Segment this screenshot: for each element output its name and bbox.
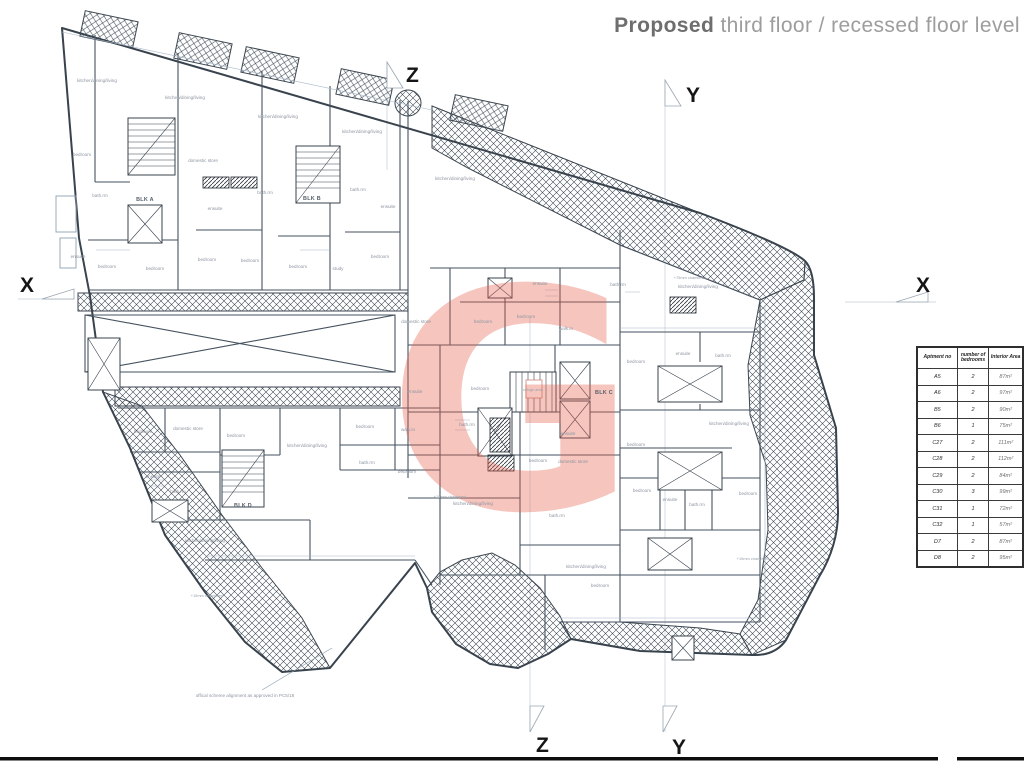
room-label: bedroom [146,266,164,271]
room-label: bedroom [73,152,91,157]
room-label: kitchen/dining/living [77,78,117,83]
room-label: bedroom [371,254,389,259]
room-label: bedroom [471,386,489,391]
block-label: BLK C [595,390,613,396]
room-label: walk.in [559,326,573,331]
room-label: kitchen/dining/living [678,284,718,289]
room-label: bedroom [739,491,757,496]
room-label: bedroom [98,264,116,269]
table-cell: 2 [957,550,989,567]
room-label: domestic store [173,426,203,431]
table-row: B5290m² [917,402,1023,419]
room-label: bedroom [633,488,651,493]
room-label: bedroom [134,429,152,434]
drawing-title-emphasis: Proposed [614,14,714,37]
apartment-table-body: A5287m²A6297m²B5290m²B6175m²C272111m²C28… [917,369,1023,568]
drawing-sheet: offical scheme alignment as approved in … [0,0,1024,768]
balcony-box [241,47,299,84]
table-cell: 87m² [989,369,1023,386]
room-label: walk.in [401,427,415,432]
room-label: bedroom [356,424,374,429]
lift-box [658,366,722,402]
terrace-bottom-left [103,392,330,672]
room-label: ensuite [381,204,396,209]
table-cell: 2 [957,468,989,485]
table-cell: D7 [917,534,957,551]
floor-plan-canvas: offical scheme alignment as approved in … [0,0,1024,768]
section-marker-z-bottom: Z [530,706,549,757]
table-row: D7287m² [917,534,1023,551]
lift-box [152,500,188,522]
table-cell: D8 [917,550,957,567]
room-label: bath.rm [350,187,366,192]
section-marker-x-left: X [20,274,74,299]
room-label: bath.rm [459,422,475,427]
table-cell: 2 [957,402,989,419]
table-cell: C32 [917,517,957,534]
room-label: +15mm chamfered [737,556,770,561]
table-row: C272111m² [917,435,1023,452]
table-cell: 87m² [989,534,1023,551]
table-cell: 57m² [989,517,1023,534]
room-label: ensuite [676,351,691,356]
room-label: refuge area [523,387,544,392]
room-label: bath.rm [715,353,731,358]
terrace-right [740,261,838,655]
apartment-table-head: Aptment no number of bedrooms Interior A… [917,347,1023,369]
balcony-strip-lower [115,387,400,406]
room-label: bedroom [627,359,645,364]
table-row: C282112m² [917,451,1023,468]
section-marker-z-top: Z [387,62,419,88]
table-cell: 99m² [989,484,1023,501]
room-label: +75mm chamfered [674,275,707,280]
table-cell: 95m² [989,550,1023,567]
table-cell: 2 [957,435,989,452]
drawing-title-rest: third floor / recessed floor level [714,14,1020,37]
room-label: kitchen/dining/living [709,421,749,426]
room-label: bedroom [591,583,609,588]
table-cell: A6 [917,385,957,402]
stair-blk-a [128,118,175,175]
table-cell: 84m² [989,468,1023,485]
room-label: bath.rm [689,502,705,507]
svg-text:Z: Z [406,64,419,87]
room-label: ensuite [663,497,678,502]
room-label: bath.rm [610,282,626,287]
lift-box [658,452,722,490]
stair-blk-b [296,146,340,203]
table-cell: 2 [957,385,989,402]
block-label: BLK D [234,503,252,509]
room-label: ensuite [561,431,576,436]
block-label: BLK B [303,196,321,202]
room-label: kitchen/dining/living [185,538,225,543]
room-label: domestic store [188,158,218,163]
table-cell: C29 [917,468,957,485]
room-label: bedroom [241,258,259,263]
room-label: kitchen/dining/living [566,564,606,569]
room-label: bedroom [627,442,645,447]
room-label: ensuite [71,254,86,259]
room-label: kitchen/dining/living [165,95,205,100]
room-label: +15mm chamfered [434,494,467,499]
drawing-title: Proposed third floor / recessed floor le… [614,14,1020,38]
room-label: ensuite [208,206,223,211]
room-label: +15mm chamfered [191,593,224,598]
table-row: C30399m² [917,484,1023,501]
table-cell: 97m² [989,385,1023,402]
svg-text:Y: Y [686,84,700,107]
room-label: bedroom [474,319,492,324]
room-label: ensuite [146,474,161,479]
table-cell: C31 [917,501,957,518]
room-label: bedroom [517,314,535,319]
table-cell: 2 [957,451,989,468]
table-row: D8295m² [917,550,1023,567]
col-header-area: Interior Area [989,347,1023,369]
logo-watermark: G [387,225,637,580]
table-cell: 2 [957,369,989,386]
svg-text:X: X [916,274,930,297]
room-label: bath.rm [359,460,375,465]
col-header-apartment: Aptment no [917,347,957,369]
room-label: ensuite [533,281,548,286]
section-marker-y-bottom: Y [663,706,686,759]
room-label: kitchen/dining/living [435,176,475,181]
table-cell: 1 [957,501,989,518]
table-row: C29284m² [917,468,1023,485]
table-cell: 90m² [989,402,1023,419]
apartment-table: Aptment no number of bedrooms Interior A… [916,346,1024,568]
room-label: bedroom [529,458,547,463]
table-cell: C30 [917,484,957,501]
section-marker-x-right: X [896,274,930,302]
svg-text:X: X [20,274,34,297]
table-cell: C27 [917,435,957,452]
table-cell: 1 [957,517,989,534]
room-label: kitchen/dining/living [342,129,382,134]
room-label: bath.rm [92,193,108,198]
table-cell: B5 [917,402,957,419]
col-header-bedrooms: number of bedrooms [957,347,989,369]
block-label: BLK A [136,197,154,203]
balcony-strip-upper [78,293,408,311]
room-label: bath.rm [170,489,186,494]
svg-text:Z: Z [536,734,549,757]
table-cell: 112m² [989,451,1023,468]
room-label: domestic store [558,459,588,464]
room-label: kitchen/dining/living [453,501,493,506]
room-label: kitchen/dining/living [258,114,298,119]
room-label: bedroom [289,264,307,269]
table-cell: A5 [917,369,957,386]
room-label: bedroom [198,257,216,262]
room-label: domestic store [401,319,431,324]
table-cell: 72m² [989,501,1023,518]
room-label: bath.rm [257,190,273,195]
room-label: kitchen/dining/living [287,443,327,448]
table-cell: 111m² [989,435,1023,452]
section-marker-y-top: Y [665,80,700,107]
terrace-bottom-right [560,622,752,655]
table-cell: B6 [917,418,957,435]
table-header-row: Aptment no number of bedrooms Interior A… [917,347,1023,369]
room-label: bedroom [398,469,416,474]
room-label: ensuite [408,389,423,394]
table-row: A5287m² [917,369,1023,386]
room-label: study [333,266,345,271]
table-row: C32157m² [917,517,1023,534]
lift-box [88,338,120,390]
balcony-box [336,69,394,106]
stair-blk-d [222,450,264,507]
table-cell: 3 [957,484,989,501]
room-label: bath.rm [549,513,565,518]
stair-blk-a-lower [128,205,162,243]
table-cell: 2 [957,534,989,551]
room-label: bedroom [227,433,245,438]
table-cell: 1 [957,418,989,435]
lift-box [648,538,692,570]
table-row: B6175m² [917,418,1023,435]
table-row: A6297m² [917,385,1023,402]
table-row: C31172m² [917,501,1023,518]
footnote-text: offical scheme alignment as approved in … [196,693,295,698]
table-cell: 75m² [989,418,1023,435]
sheet-border-bottom [0,757,1024,761]
table-cell: C28 [917,451,957,468]
svg-text:Y: Y [672,736,686,759]
lift-box [672,636,694,660]
